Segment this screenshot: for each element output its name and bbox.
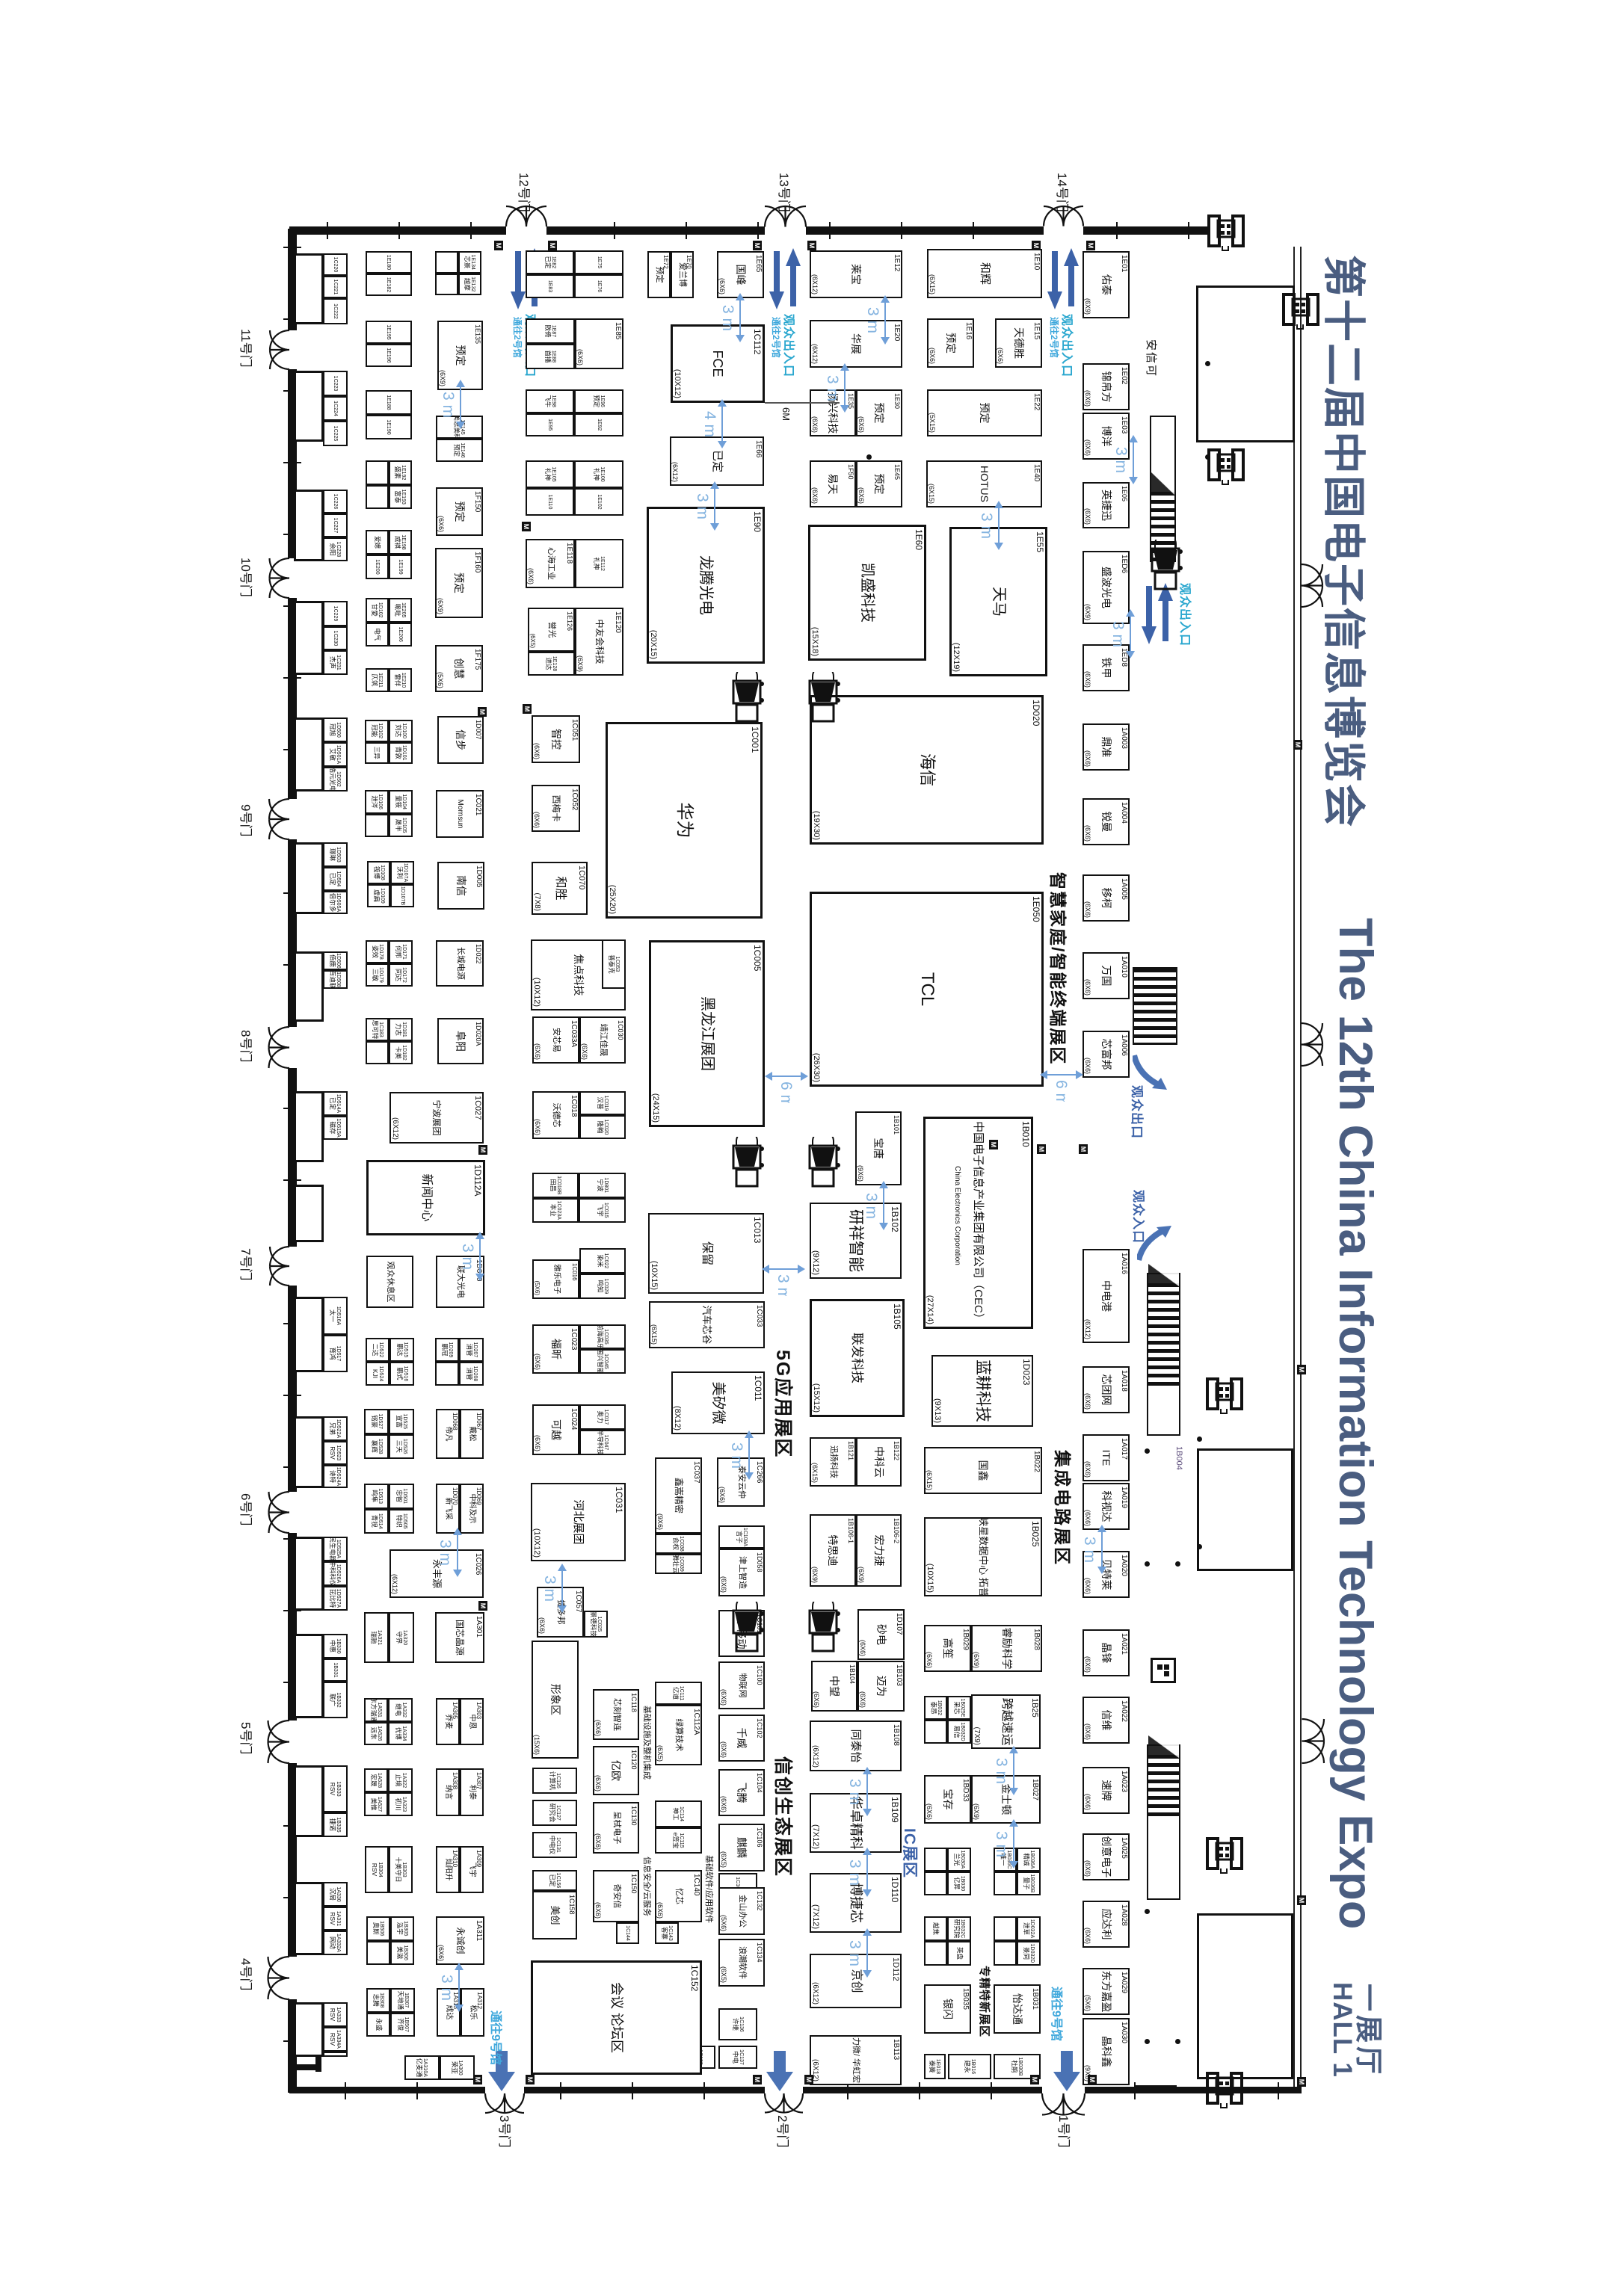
- svg-text:3 m: 3 m: [825, 375, 841, 401]
- svg-text:3 m: 3 m: [1113, 447, 1130, 473]
- svg-text:3 m: 3 m: [1110, 621, 1127, 647]
- svg-text:3 m: 3 m: [847, 1860, 863, 1886]
- svg-text:3 m: 3 m: [720, 305, 736, 331]
- svg-text:3 m: 3 m: [437, 1540, 454, 1566]
- svg-text:4 m: 4 m: [702, 411, 718, 437]
- svg-text:3 m: 3 m: [994, 1831, 1010, 1857]
- svg-text:3 m: 3 m: [440, 392, 457, 418]
- svg-text:3 m: 3 m: [439, 1975, 455, 2001]
- svg-text:3 m: 3 m: [774, 1274, 792, 1296]
- svg-text:3 m: 3 m: [863, 1193, 880, 1219]
- svg-text:6 m: 6 m: [777, 1081, 795, 1103]
- svg-text:6 m: 6 m: [1053, 1080, 1070, 1102]
- svg-text:3 m: 3 m: [865, 307, 881, 333]
- svg-text:3 m: 3 m: [847, 1779, 863, 1805]
- svg-text:3 m: 3 m: [847, 1940, 863, 1966]
- svg-text:3 m: 3 m: [460, 1244, 476, 1270]
- svg-text:3 m: 3 m: [994, 1758, 1010, 1784]
- svg-text:3 m: 3 m: [979, 513, 995, 539]
- svg-text:3 m: 3 m: [729, 1442, 745, 1469]
- svg-text:3 m: 3 m: [1082, 1537, 1098, 1563]
- svg-text:3 m: 3 m: [542, 1576, 558, 1602]
- svg-text:3 m: 3 m: [695, 493, 711, 519]
